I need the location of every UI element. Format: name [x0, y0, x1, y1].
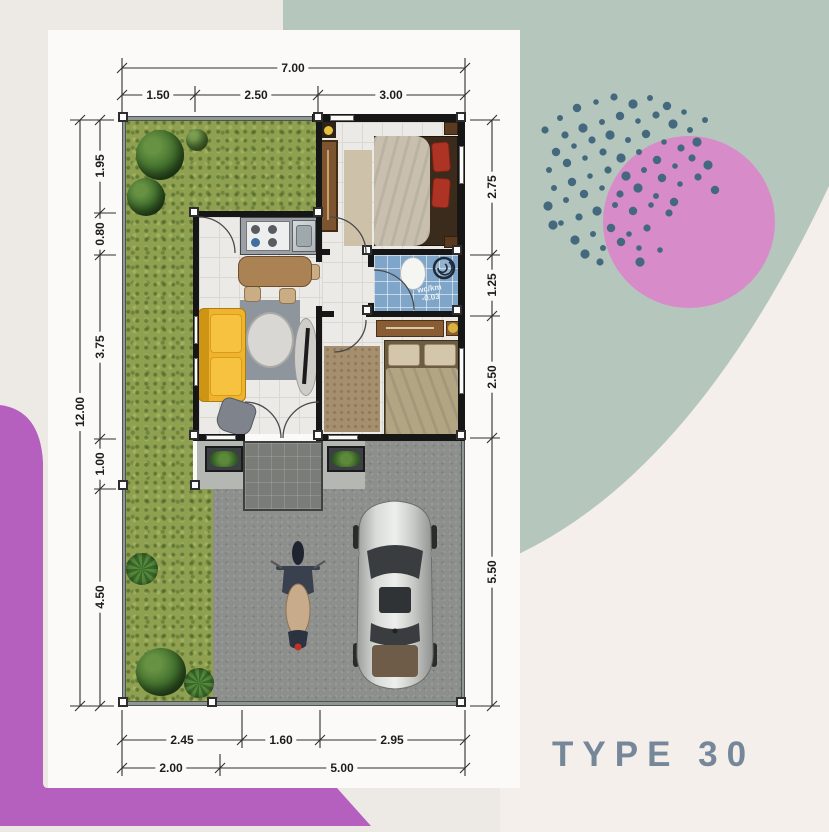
column-post: [452, 245, 462, 255]
window: [328, 435, 358, 440]
dim-bottom-r2-seg2: 5.00: [326, 761, 357, 775]
entry-step: [243, 441, 323, 511]
wall-kitchen-top: [193, 211, 322, 217]
stove-burner: [268, 238, 277, 247]
floor-plan-poster: wc/km -0.03: [0, 0, 829, 832]
nightstand: [444, 122, 458, 135]
wall-hall-top-right: [366, 249, 465, 255]
planter-plant: [210, 451, 238, 467]
car-trunk-mat: [372, 645, 418, 677]
pink-circle: [603, 136, 775, 308]
dim-right-seg2: 1.25: [485, 269, 499, 300]
dresser-handle: [386, 327, 434, 329]
palm-plant: [184, 668, 214, 698]
plan-title: TYPE 30: [552, 735, 755, 775]
wardrobe-handle: [327, 150, 329, 220]
lamp: [324, 126, 333, 135]
motorcycle: [268, 540, 328, 655]
window: [206, 435, 236, 440]
car: [350, 495, 440, 691]
dim-bottom-r1-seg1: 2.45: [166, 733, 197, 747]
column-post: [313, 207, 323, 217]
dim-bottom-r1-seg2: 1.60: [265, 733, 296, 747]
stove-burner: [251, 238, 260, 247]
column-post: [362, 305, 372, 315]
column-post: [190, 480, 200, 490]
column-post: [456, 697, 466, 707]
fence-right-lower: [461, 436, 465, 706]
wardrobe: [320, 140, 338, 232]
bush: [136, 648, 186, 696]
coffee-table: [246, 312, 294, 368]
dim-right-seg1: 2.75: [485, 171, 499, 202]
dim-left-seg4: 1.00: [93, 448, 107, 479]
column-post: [362, 245, 372, 255]
car-mirror: [430, 551, 440, 557]
planter-plant: [332, 451, 360, 467]
rug-bedroom2: [324, 346, 380, 432]
column-post: [189, 207, 199, 217]
wall-bath-bottom-right: [366, 311, 465, 317]
window: [194, 316, 198, 344]
wall-hall-top-stub: [316, 249, 330, 255]
column-post: [313, 112, 323, 122]
dining-chair: [244, 286, 261, 302]
dim-left-seg3: 3.75: [93, 331, 107, 362]
column-post: [456, 430, 466, 440]
column-post: [313, 430, 323, 440]
window: [459, 146, 464, 184]
dim-right-seg3: 2.50: [485, 361, 499, 392]
column-post: [456, 112, 466, 122]
dining-chair: [279, 288, 296, 304]
bed2-pillow: [388, 344, 420, 366]
column-post: [118, 480, 128, 490]
moto-front-wheel: [292, 541, 304, 565]
side-lamp-shade: [448, 323, 458, 333]
column-post: [452, 305, 462, 315]
wall-center-lower: [316, 306, 322, 441]
car-wheel: [431, 525, 437, 549]
bed1-pillow: [431, 141, 451, 172]
palm-plant: [126, 553, 158, 585]
wall-bath-bottom-stub: [316, 311, 334, 317]
tree: [136, 130, 184, 180]
dim-left-seg2: 0.80: [93, 218, 107, 249]
bed1-pillow: [431, 177, 451, 208]
toilet: [400, 257, 426, 290]
column-post: [189, 430, 199, 440]
dim-bottom-r2-seg1: 2.00: [155, 761, 186, 775]
dining-table: [238, 256, 312, 287]
window: [194, 358, 198, 386]
stove-burner: [268, 225, 277, 234]
car-wheel: [353, 525, 359, 549]
planter-box: [205, 446, 243, 472]
fence-top: [122, 116, 318, 121]
dim-top-seg2: 2.50: [240, 88, 271, 102]
car-mirror: [350, 551, 360, 557]
dim-left-seg1: 1.95: [93, 150, 107, 181]
moto-taillight: [295, 644, 302, 651]
dim-left-total: 12.00: [73, 393, 87, 431]
dim-bottom-r1-seg3: 2.95: [376, 733, 407, 747]
window: [330, 115, 354, 121]
dim-top-total: 7.00: [277, 61, 308, 75]
fence-left: [122, 116, 126, 706]
sofa-cushion: [210, 357, 242, 396]
bush: [127, 178, 165, 216]
column-post: [118, 112, 128, 122]
dim-right-seg4: 5.50: [485, 556, 499, 587]
sink-bowl: [296, 225, 312, 247]
bed2-blanket: [386, 368, 458, 436]
column-post: [207, 697, 217, 707]
car-sunroof: [379, 587, 411, 613]
planter-box: [327, 446, 365, 472]
fence-bottom: [122, 701, 465, 706]
bed2-pillow: [424, 344, 456, 366]
window: [459, 348, 464, 394]
rug-bedroom1: [344, 150, 372, 246]
stove-burner: [251, 225, 260, 234]
dim-left-seg5: 4.50: [93, 581, 107, 612]
sofa-cushion: [210, 314, 242, 353]
column-post: [118, 697, 128, 707]
dim-top-seg1: 1.50: [142, 88, 173, 102]
dim-top-seg3: 3.00: [375, 88, 406, 102]
moto-seat: [286, 584, 310, 636]
bed1-blanket: [374, 136, 430, 246]
wall-center-upper: [316, 114, 322, 262]
car-emblem: [393, 629, 398, 634]
bush: [186, 129, 208, 151]
